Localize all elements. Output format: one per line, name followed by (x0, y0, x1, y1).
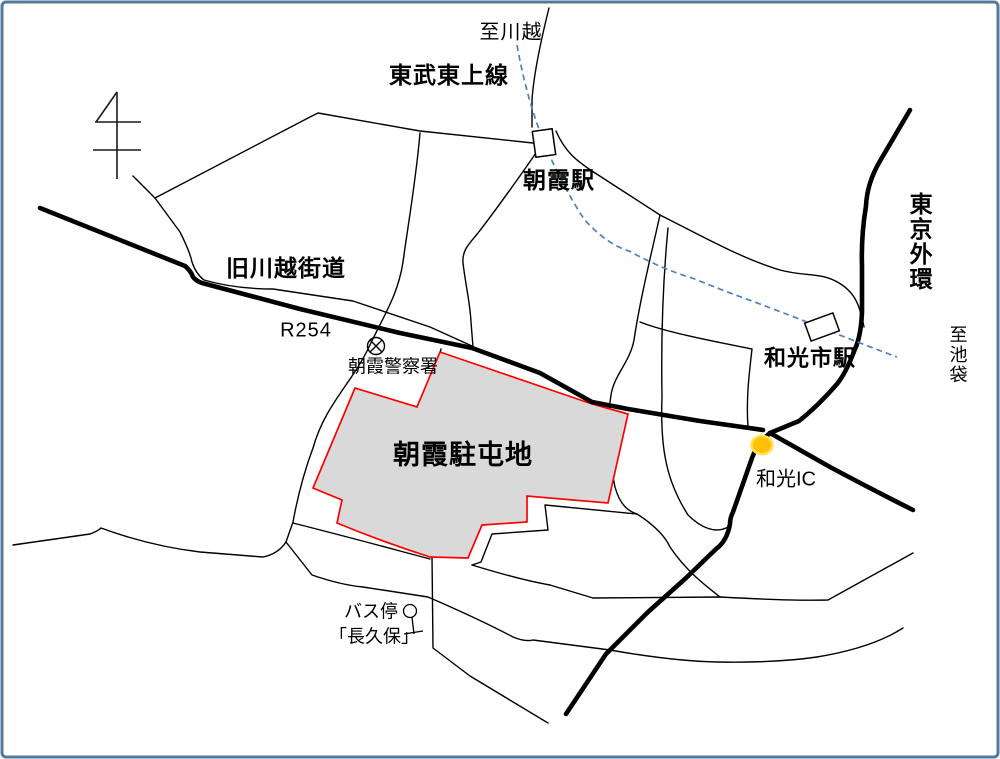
map-canvas: 至川越 東武東上線 朝霞駅 旧川越街道 R254 朝霞警察署 朝霞駐屯地 和光市… (0, 0, 1000, 759)
road-mid-south (662, 228, 728, 530)
road-nw-spur (133, 176, 155, 198)
label-asaka-station: 朝霞駅 (523, 168, 595, 192)
label-to-ikebukuro: 至池袋 (948, 325, 967, 385)
label-wakoshi-station: 和光市駅 (764, 346, 856, 369)
label-asaka-police: 朝霞警察署 (348, 358, 438, 377)
road-west-long (13, 528, 286, 557)
north-arrow-icon (93, 92, 141, 179)
label-bus-stop: バス停 (344, 603, 398, 622)
label-camp-asaka: 朝霞駐屯地 (393, 441, 533, 469)
railway-tobu-tojo (517, 45, 897, 357)
label-bus-stop-name: 「長久保」 (329, 628, 419, 647)
road-nw-to-station (155, 113, 533, 198)
label-r254: R254 (280, 321, 332, 342)
label-tokyo-gaikan: 東京外環 (907, 192, 931, 292)
wako-ic-dot-icon (752, 436, 773, 454)
road-wakoshi-south (747, 349, 752, 427)
road-fork-east (660, 215, 864, 327)
road-wakoshi-connector (640, 322, 752, 349)
map-drawing (0, 0, 1000, 759)
label-to-kawagoe: 至川越 (480, 23, 543, 44)
road-camp-south-east (472, 553, 913, 600)
wakoshi-station-marker (805, 313, 840, 341)
asaka-station-marker (532, 129, 555, 158)
label-wako-ic: 和光IC (756, 470, 816, 491)
label-kyu-kawagoe-kaido: 旧川越街道 (226, 256, 346, 280)
label-tobu-tojo-line: 東武東上線 (389, 63, 509, 87)
